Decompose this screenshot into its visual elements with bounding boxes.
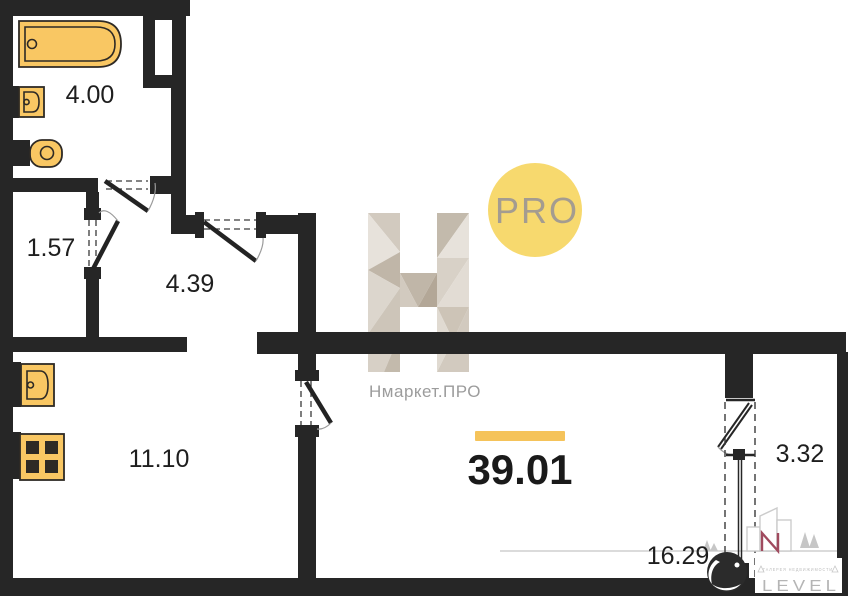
logo-tagline: ГАЛЕРЕЯ НЕДВИЖИМОСТИ: [763, 567, 833, 572]
total-area-label: 39.01: [467, 446, 572, 493]
watermark-pro-badge: PRO: [488, 163, 582, 257]
total-area: 39.01: [467, 431, 572, 493]
area-label-bathroom: 4.00: [66, 81, 115, 109]
storage-east-wall-lower: [86, 279, 99, 339]
bathroom-south-wall: [13, 178, 98, 192]
bathroom-east-wall: [171, 16, 186, 234]
area-label-storage: 1.57: [27, 234, 76, 262]
kitchen-living-wall-upper: [298, 354, 316, 372]
vent-shaft: [155, 20, 172, 75]
stove-icon: [20, 434, 64, 480]
entrance-wall-left: [171, 215, 197, 234]
toilet-tank: [13, 140, 30, 166]
area-label-balcony: 3.32: [776, 440, 825, 468]
area-label-living-room: 16.29: [647, 542, 710, 570]
total-area-underline: [475, 431, 565, 441]
building-icon: [747, 527, 760, 551]
area-label-kitchen: 11.10: [129, 445, 190, 473]
logo-swirl-icon: [707, 552, 747, 592]
storage-east-wall-upper: [86, 192, 99, 209]
floor-plan-canvas: Нмаркет.ПРО PRO: [0, 0, 851, 600]
hallway-east-wall: [298, 213, 316, 337]
balcony-door-sill: [733, 449, 745, 460]
living-door-jamb-bottom: [295, 425, 319, 437]
living-door-jamb-top: [295, 370, 319, 381]
floor-plan-page: Нмаркет.ПРО PRO: [0, 0, 851, 600]
wall-left: [0, 0, 13, 596]
kitchen-living-wall-lower: [298, 437, 316, 578]
balcony-wall-stub: [725, 354, 753, 398]
area-label-hallway: 4.39: [166, 270, 215, 298]
storage-door-jamb-bottom: [84, 267, 101, 279]
cross-wall-right: [257, 332, 846, 354]
kitchen-sink-backing: [13, 362, 21, 407]
watermark-brand-text: Нмаркет.ПРО: [369, 382, 481, 401]
storage-door-jamb-top: [84, 208, 101, 220]
toilet-icon: [30, 140, 62, 167]
cross-wall-left: [13, 337, 187, 352]
bathroom-door-jamb: [150, 176, 172, 194]
entrance-door-jamb-left: [195, 212, 204, 238]
pro-badge-text: PRO: [495, 190, 579, 231]
logo-wordmark: LEVEL: [762, 578, 840, 595]
